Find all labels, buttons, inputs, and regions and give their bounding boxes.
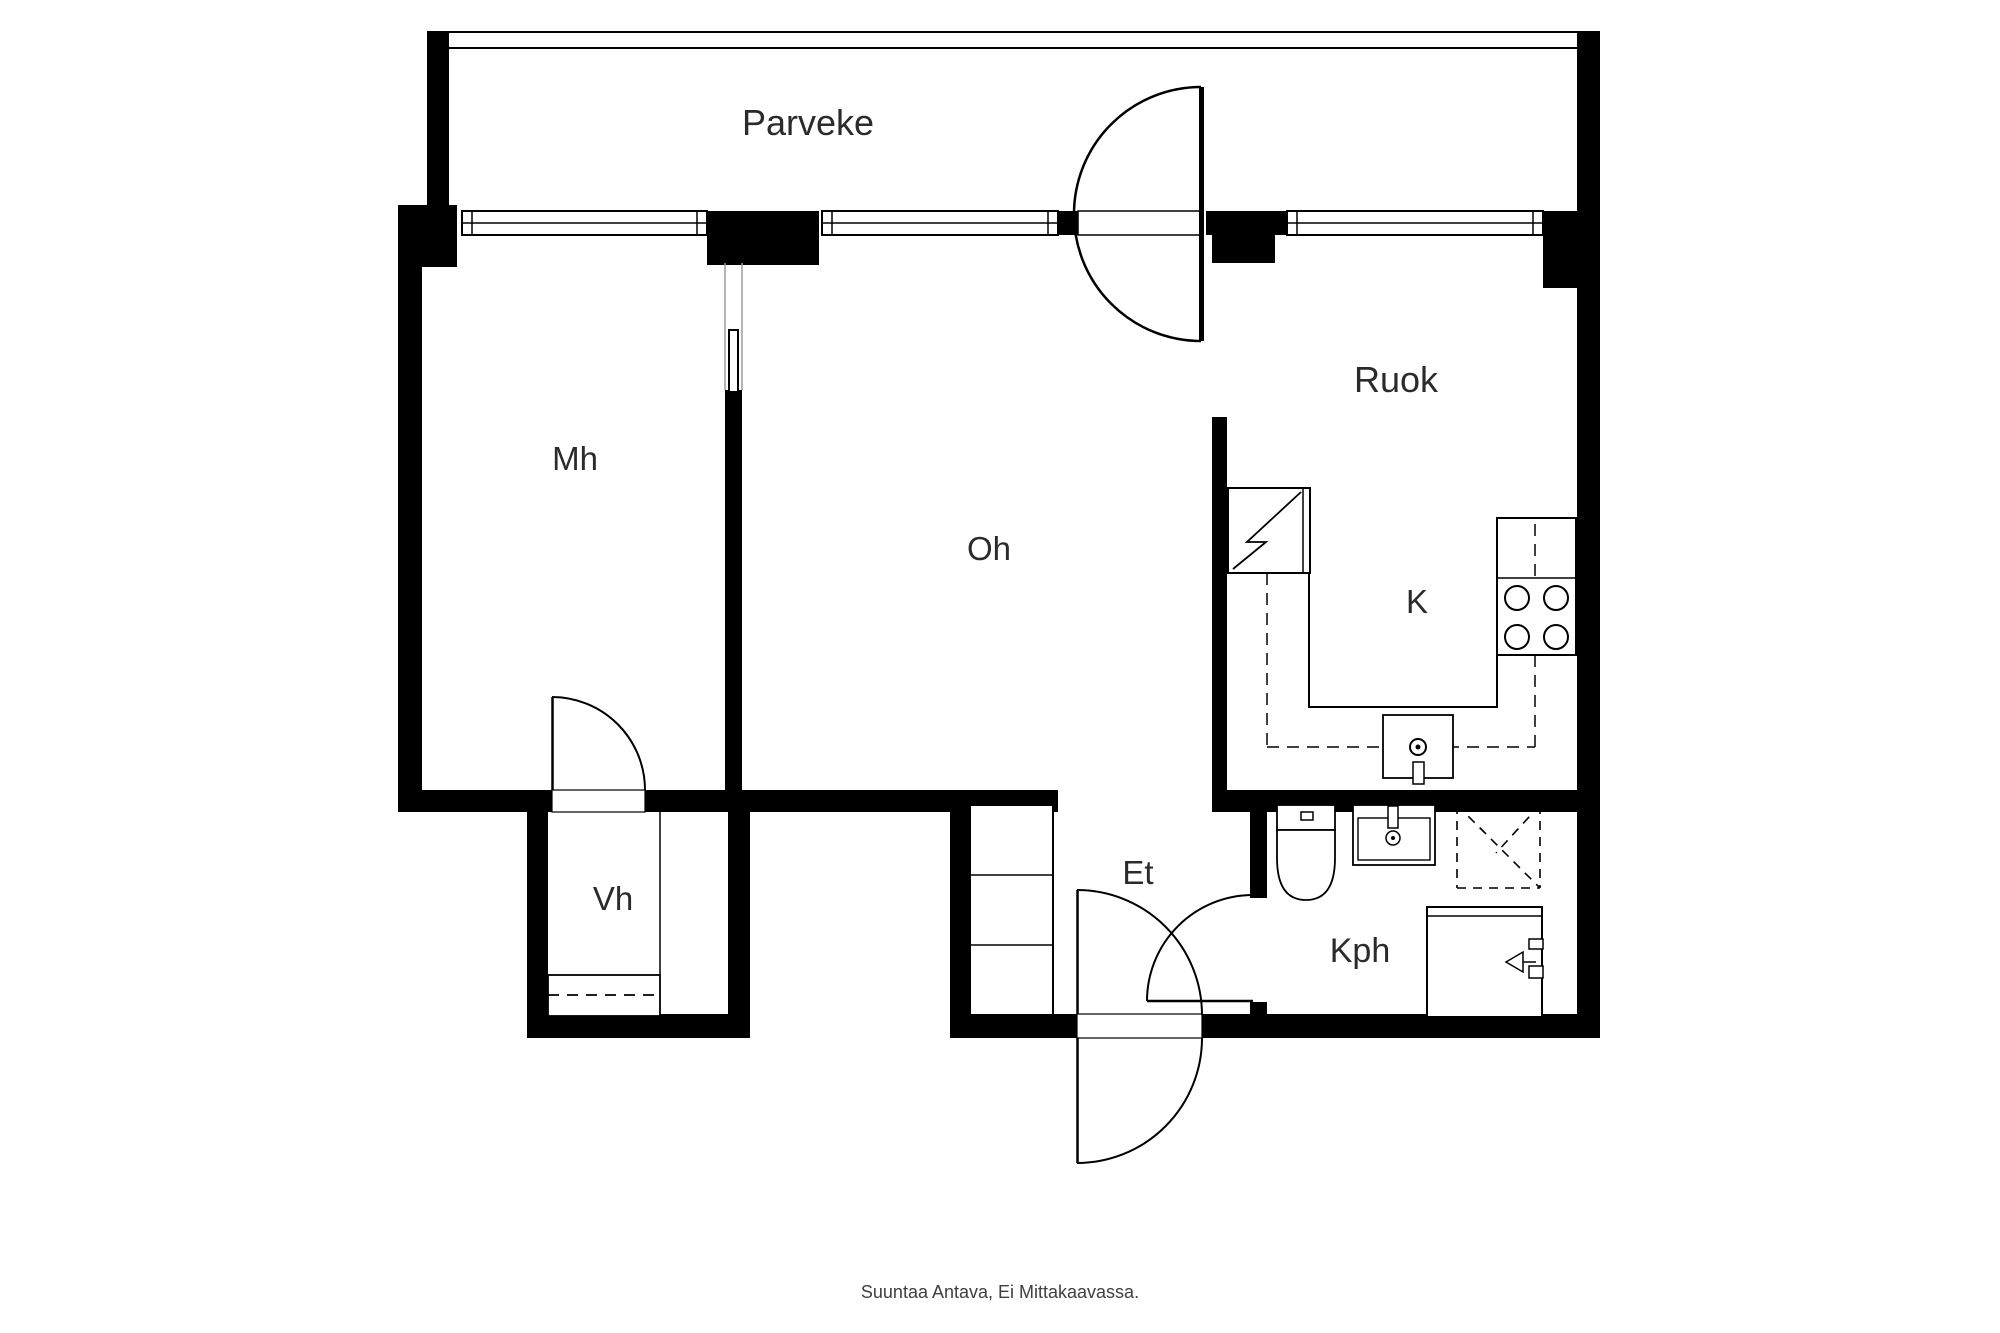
- window-icon: [822, 211, 1058, 235]
- washing-machine-icon: [1427, 907, 1543, 1017]
- wall-segment: [1212, 417, 1227, 792]
- toilet-icon: [1277, 805, 1335, 900]
- pocket-panel-icon: [729, 330, 738, 392]
- wall-segment: [427, 31, 449, 213]
- room-label-k: K: [1406, 583, 1428, 620]
- window-icon: [462, 211, 707, 235]
- kitchen-sink-icon: [1383, 715, 1453, 784]
- wall-segment: [527, 1014, 750, 1038]
- wall-segment: [398, 205, 422, 812]
- room-label-oh: Oh: [967, 530, 1011, 567]
- floor-plan-page: Parveke Mh Oh Ruok K Vh Et Kph Suuntaa A…: [0, 0, 2000, 1333]
- room-label-et: Et: [1122, 854, 1153, 891]
- room-label-parveke: Parveke: [742, 102, 874, 143]
- windows: [462, 211, 1543, 235]
- stove-icon: [1497, 518, 1576, 655]
- wall-segment: [527, 812, 548, 1038]
- fridge-icon: [1228, 488, 1310, 573]
- wall-segment: [1206, 211, 1287, 235]
- room-label-ruok: Ruok: [1354, 359, 1439, 400]
- wall-segment: [1577, 31, 1600, 1038]
- wall-segment: [707, 211, 819, 265]
- washbasin-icon: [1353, 805, 1435, 865]
- wall-segment: [728, 812, 750, 1038]
- wall-segment: [725, 390, 742, 810]
- room-label-kph: Kph: [1330, 932, 1391, 970]
- room-label-vh: Vh: [593, 880, 633, 917]
- wall-segment: [1212, 235, 1275, 263]
- wall-segment: [398, 790, 552, 812]
- room-label-mh: Mh: [552, 440, 598, 477]
- wall-segment: [1250, 812, 1267, 898]
- wall-segment: [1543, 211, 1600, 288]
- plan-background: [0, 0, 2000, 1333]
- wall-segment: [950, 1014, 1077, 1038]
- wall-segment: [1250, 1002, 1267, 1014]
- disclaimer-text: Suuntaa Antava, Ei Mittakaavassa.: [861, 1282, 1139, 1302]
- hall-closet-icon: [970, 805, 1053, 1015]
- wall-segment: [950, 805, 970, 1017]
- balcony-door-threshold: [1078, 211, 1202, 235]
- wall-segment: [398, 205, 457, 267]
- window-icon: [1287, 211, 1543, 235]
- floor-plan: Parveke Mh Oh Ruok K Vh Et Kph Suuntaa A…: [0, 0, 2000, 1333]
